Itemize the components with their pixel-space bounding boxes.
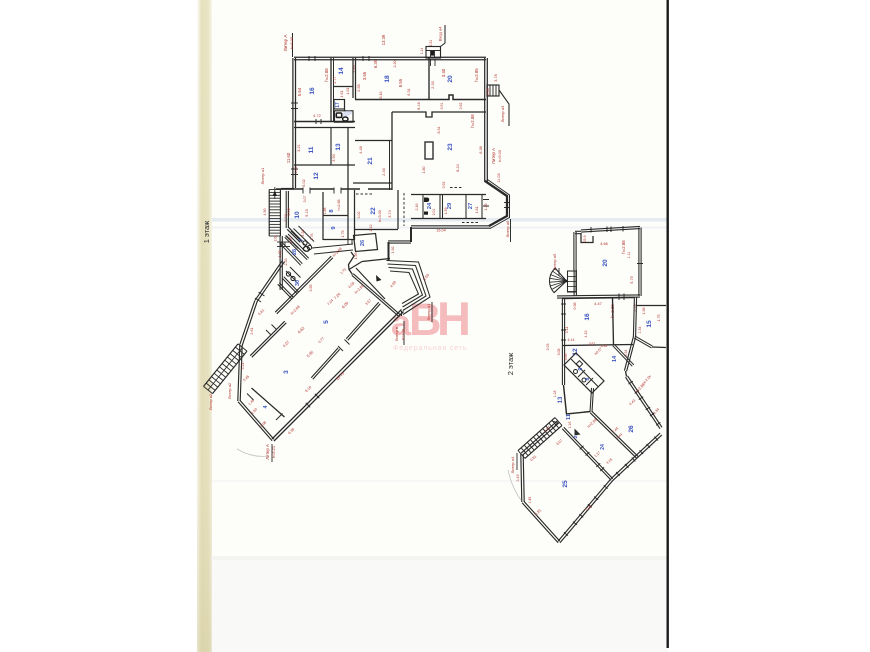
svg-text:Литер а1: Литер а1 xyxy=(426,303,431,320)
svg-text:3.21: 3.21 xyxy=(297,144,301,151)
svg-text:1.18: 1.18 xyxy=(553,391,557,398)
svg-text:2.31: 2.31 xyxy=(429,40,433,47)
svg-text:17: 17 xyxy=(335,102,341,108)
svg-text:0.98: 0.98 xyxy=(573,303,577,310)
svg-text:1.92: 1.92 xyxy=(391,247,395,254)
svg-text:13: 13 xyxy=(335,143,342,151)
svg-text:22: 22 xyxy=(370,207,377,215)
svg-text:27: 27 xyxy=(468,203,474,209)
svg-text:1.70: 1.70 xyxy=(289,237,293,244)
svg-text:2 этаж: 2 этаж xyxy=(506,353,515,375)
svg-text:1.29: 1.29 xyxy=(484,204,488,211)
svg-text:7: 7 xyxy=(299,238,305,241)
svg-text:0.57: 0.57 xyxy=(589,342,596,346)
svg-text:15: 15 xyxy=(646,320,653,328)
svg-text:1.75: 1.75 xyxy=(341,231,345,238)
svg-text:2.03: 2.03 xyxy=(546,344,550,351)
svg-text:4.54: 4.54 xyxy=(301,230,305,237)
svg-text:1.80: 1.80 xyxy=(422,167,426,174)
svg-text:4.13: 4.13 xyxy=(584,331,588,338)
svg-text:14: 14 xyxy=(338,67,345,75)
svg-text:1.88: 1.88 xyxy=(323,208,327,215)
svg-text:3.55: 3.55 xyxy=(309,285,313,292)
svg-text:1.01: 1.01 xyxy=(294,167,298,174)
svg-text:Литер а2: Литер а2 xyxy=(208,394,213,410)
svg-text:6.31: 6.31 xyxy=(407,88,411,95)
svg-text:Литер а5: Литер а5 xyxy=(552,253,557,270)
svg-text:2.20: 2.20 xyxy=(393,61,397,68)
svg-text:8.16: 8.16 xyxy=(379,92,383,99)
svg-text:2: 2 xyxy=(573,435,579,438)
svg-text:1.45: 1.45 xyxy=(528,497,532,504)
svg-text:h=2.88: h=2.88 xyxy=(337,199,341,210)
svg-text:12: 12 xyxy=(313,172,320,180)
svg-text:0.91: 0.91 xyxy=(440,103,444,110)
svg-text:4.50: 4.50 xyxy=(263,209,267,216)
svg-text:2.61: 2.61 xyxy=(274,235,278,242)
svg-text:3.35: 3.35 xyxy=(486,88,490,95)
svg-text:3.07: 3.07 xyxy=(303,196,307,203)
svg-text:11: 11 xyxy=(566,414,572,420)
svg-text:4.47: 4.47 xyxy=(594,302,601,306)
svg-text:20: 20 xyxy=(602,259,609,267)
svg-text:8.16: 8.16 xyxy=(417,102,421,109)
svg-text:20: 20 xyxy=(447,75,454,83)
svg-text:4.14: 4.14 xyxy=(568,338,575,342)
svg-text:h=2.88: h=2.88 xyxy=(621,240,626,254)
svg-text:3.34: 3.34 xyxy=(601,344,608,348)
svg-text:Вход а4: Вход а4 xyxy=(438,26,443,41)
svg-text:3.78: 3.78 xyxy=(494,74,498,81)
svg-text:26: 26 xyxy=(628,425,635,433)
svg-text:Литер в: Литер в xyxy=(394,327,399,341)
svg-text:Литер А: Литер А xyxy=(265,444,270,460)
svg-text:4: 4 xyxy=(263,406,269,409)
svg-text:Литер а1: Литер а1 xyxy=(260,167,265,184)
svg-text:2.62: 2.62 xyxy=(459,103,463,110)
svg-text:11.03: 11.03 xyxy=(497,173,501,182)
svg-text:h=2.88: h=2.88 xyxy=(470,114,475,128)
svg-text:1.61: 1.61 xyxy=(340,90,344,97)
svg-text:h=3.21: h=3.21 xyxy=(402,328,406,340)
svg-text:0.92: 0.92 xyxy=(442,182,446,189)
svg-text:3.08: 3.08 xyxy=(557,349,561,356)
svg-text:Литер а6: Литер а6 xyxy=(505,220,510,237)
svg-text:h=3.00: h=3.00 xyxy=(378,210,382,222)
svg-text:1.34: 1.34 xyxy=(638,327,642,334)
svg-text:1.14: 1.14 xyxy=(420,48,424,55)
svg-text:3.74: 3.74 xyxy=(388,210,392,217)
svg-text:2.46: 2.46 xyxy=(382,168,386,175)
svg-text:4.48: 4.48 xyxy=(359,146,363,153)
svg-text:28: 28 xyxy=(292,249,298,255)
svg-text:25: 25 xyxy=(562,480,569,488)
svg-text:1.75: 1.75 xyxy=(657,315,661,322)
svg-text:14: 14 xyxy=(612,355,618,362)
svg-text:3.56: 3.56 xyxy=(564,354,568,361)
svg-text:16: 16 xyxy=(309,87,316,95)
svg-text:1.81: 1.81 xyxy=(475,207,479,214)
svg-text:24: 24 xyxy=(600,444,606,450)
svg-text:18: 18 xyxy=(384,75,391,83)
svg-text:1.76: 1.76 xyxy=(310,234,314,241)
svg-text:5: 5 xyxy=(323,320,330,324)
svg-text:9: 9 xyxy=(578,367,584,370)
svg-text:3.65: 3.65 xyxy=(362,71,367,80)
svg-text:2.61: 2.61 xyxy=(250,327,254,334)
svg-text:Литер А: Литер А xyxy=(283,35,288,52)
svg-text:2.33: 2.33 xyxy=(431,81,435,88)
svg-text:2.01: 2.01 xyxy=(432,209,436,216)
svg-text:16.04: 16.04 xyxy=(436,229,446,233)
svg-text:21: 21 xyxy=(367,157,374,165)
svg-text:6.39: 6.39 xyxy=(373,59,378,68)
svg-text:2.12: 2.12 xyxy=(369,225,373,232)
svg-text:3.02: 3.02 xyxy=(357,212,361,219)
svg-text:Литер а4: Литер а4 xyxy=(510,456,515,473)
svg-text:3.11: 3.11 xyxy=(565,327,569,334)
svg-text:1 этаж: 1 этаж xyxy=(202,221,211,243)
svg-text:4.66: 4.66 xyxy=(600,241,608,246)
svg-text:Н: Н xyxy=(437,292,471,345)
svg-text:13: 13 xyxy=(558,396,564,403)
svg-text:1.39: 1.39 xyxy=(444,208,448,215)
svg-text:16: 16 xyxy=(584,313,591,321)
svg-text:10: 10 xyxy=(294,211,301,219)
svg-text:1.98: 1.98 xyxy=(642,308,646,315)
svg-text:2.16: 2.16 xyxy=(415,204,419,211)
svg-text:5.79: 5.79 xyxy=(630,276,634,283)
svg-text:25.9: 25.9 xyxy=(583,236,587,243)
svg-text:Литер А: Литер А xyxy=(491,148,496,164)
svg-text:2.55: 2.55 xyxy=(357,84,361,91)
svg-text:1.28: 1.28 xyxy=(278,251,282,258)
svg-text:11.60: 11.60 xyxy=(286,152,291,163)
svg-text:7.70: 7.70 xyxy=(284,214,288,221)
svg-text:3.40: 3.40 xyxy=(441,68,446,77)
svg-text:3.50: 3.50 xyxy=(332,154,336,161)
svg-text:h=2.85: h=2.85 xyxy=(474,68,479,82)
svg-text:5.64: 5.64 xyxy=(297,87,302,96)
svg-text:1.61: 1.61 xyxy=(346,87,350,94)
svg-text:23: 23 xyxy=(447,143,454,151)
svg-text:3.49: 3.49 xyxy=(516,475,520,482)
svg-text:3.21: 3.21 xyxy=(241,363,245,370)
svg-text:30: 30 xyxy=(295,280,301,286)
svg-text:8.34: 8.34 xyxy=(437,127,441,134)
svg-text:8.55: 8.55 xyxy=(398,78,403,87)
svg-text:1.16: 1.16 xyxy=(568,422,572,429)
svg-text:6.02: 6.02 xyxy=(302,179,306,186)
svg-text:Литер а2: Литер а2 xyxy=(227,383,232,399)
svg-text:h=9.00: h=9.00 xyxy=(289,36,294,49)
svg-text:Федеральная сеть: Федеральная сеть xyxy=(393,345,467,352)
svg-text:11: 11 xyxy=(308,146,315,153)
svg-text:h=2.88: h=2.88 xyxy=(324,68,329,82)
svg-text:Литер а3: Литер а3 xyxy=(500,105,505,122)
svg-text:24: 24 xyxy=(427,202,433,209)
svg-text:8: 8 xyxy=(585,377,591,380)
svg-text:3: 3 xyxy=(283,370,290,374)
svg-text:6.38: 6.38 xyxy=(479,146,483,153)
svg-text:h=9.00: h=9.00 xyxy=(497,149,502,162)
svg-text:9.15: 9.15 xyxy=(305,209,309,216)
svg-text:4.72: 4.72 xyxy=(313,114,320,118)
svg-text:26: 26 xyxy=(360,240,366,246)
svg-text:13.39: 13.39 xyxy=(381,34,386,45)
svg-text:1.11: 1.11 xyxy=(627,252,631,259)
svg-text:8.24: 8.24 xyxy=(456,164,460,171)
svg-text:2.77: 2.77 xyxy=(333,76,337,83)
